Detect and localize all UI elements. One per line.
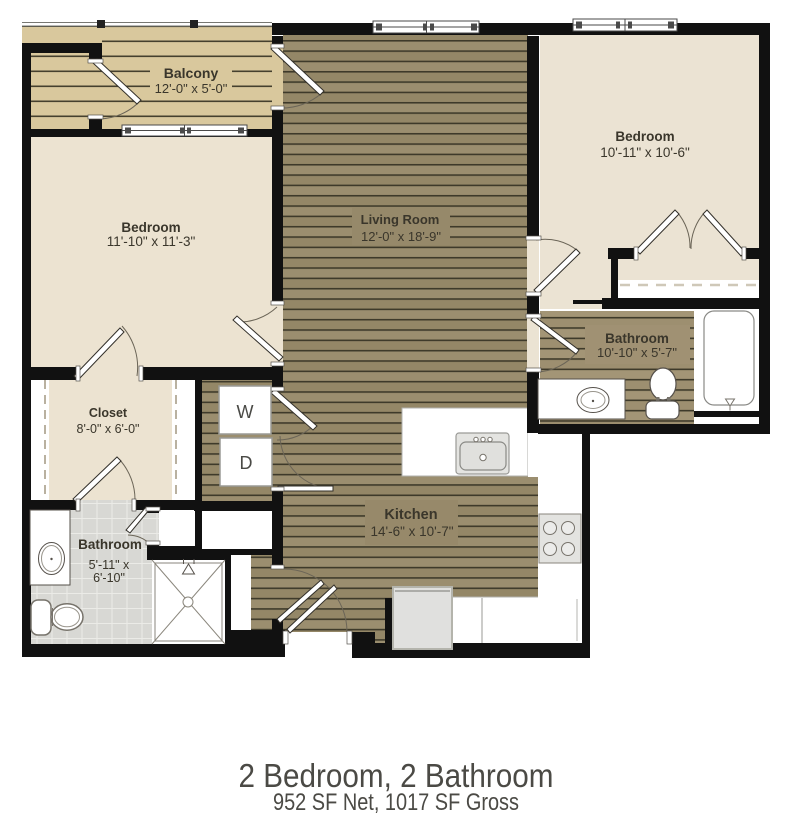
svg-text:8'-0" x 6'-0": 8'-0" x 6'-0" (77, 422, 140, 436)
svg-text:10'-11" x 10'-6": 10'-11" x 10'-6" (600, 145, 690, 160)
svg-text:6'-10": 6'-10" (93, 571, 125, 585)
svg-text:Kitchen: Kitchen (384, 507, 437, 523)
svg-text:W: W (237, 402, 254, 422)
svg-text:10'-10" x 5'-7": 10'-10" x 5'-7" (597, 345, 677, 360)
svg-text:14'-6" x 10'-7": 14'-6" x 10'-7" (370, 524, 453, 539)
svg-text:952 SF Net, 1017 SF Gross: 952 SF Net, 1017 SF Gross (273, 789, 519, 816)
svg-text:D: D (240, 453, 253, 473)
svg-text:Closet: Closet (89, 406, 128, 420)
svg-text:Bedroom: Bedroom (615, 129, 674, 144)
svg-text:12'-0" x 5'-0": 12'-0" x 5'-0" (155, 81, 228, 96)
svg-text:Bathroom: Bathroom (605, 331, 669, 346)
svg-text:11'-10" x 11'-3": 11'-10" x 11'-3" (107, 234, 196, 249)
svg-text:Bathroom: Bathroom (78, 537, 142, 552)
svg-text:12'-0" x 18'-9": 12'-0" x 18'-9" (361, 229, 441, 244)
svg-text:Balcony: Balcony (164, 65, 219, 81)
svg-text:Living Room: Living Room (361, 212, 440, 227)
svg-text:5'-11" x: 5'-11" x (89, 558, 130, 572)
svg-text:Bedroom: Bedroom (121, 220, 180, 235)
